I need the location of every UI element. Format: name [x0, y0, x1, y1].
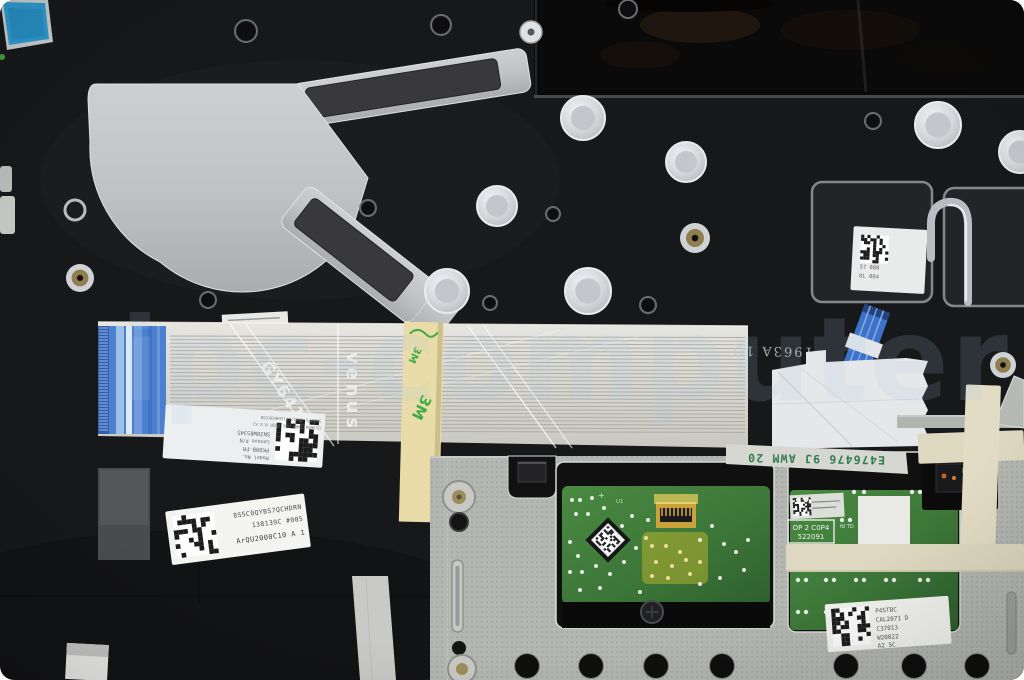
photo-vignette — [0, 0, 1024, 680]
product-photo-frame: 57 088 0L 004 — [0, 0, 1024, 680]
laptop-palmrest-internal-photo: 57 088 0L 004 — [0, 0, 1024, 680]
